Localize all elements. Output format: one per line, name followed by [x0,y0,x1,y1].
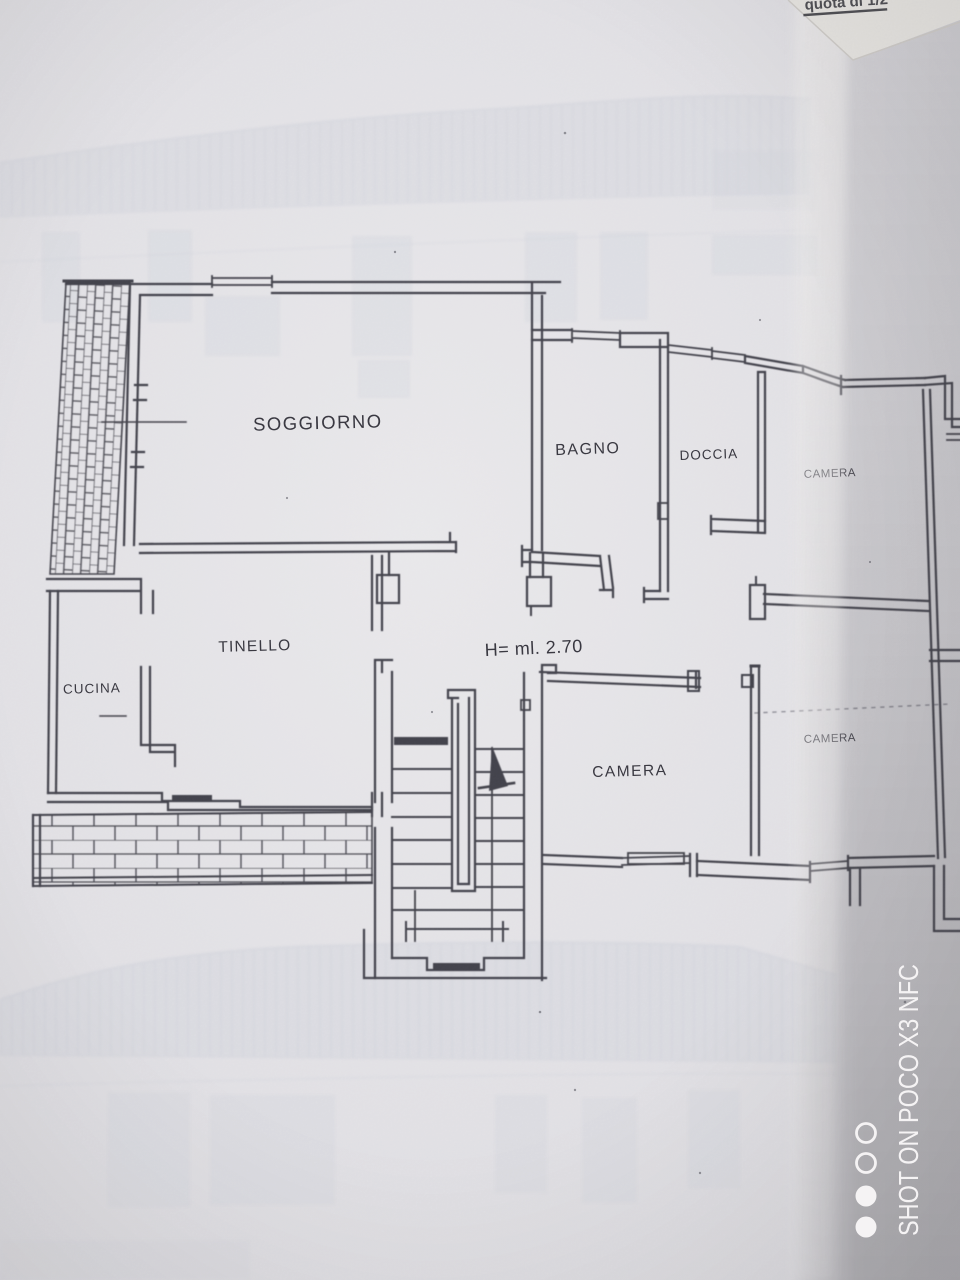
svg-text:SHOT ON POCO X3 NFC: SHOT ON POCO X3 NFC [893,964,924,1236]
